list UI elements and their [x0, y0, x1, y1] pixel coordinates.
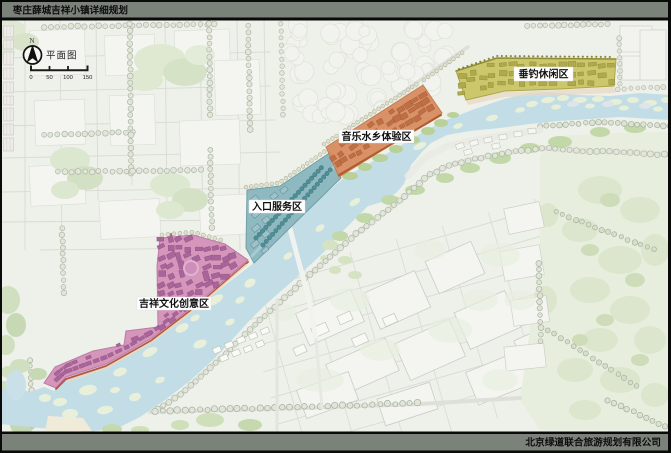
svg-text:50: 50: [46, 75, 52, 81]
svg-text:北京绿道联合旅游规划有限公司: 北京绿道联合旅游规划有限公司: [525, 436, 661, 449]
svg-text:吉祥文化创意区: 吉祥文化创意区: [139, 297, 209, 310]
svg-text:音乐水乡体验区: 音乐水乡体验区: [342, 130, 412, 143]
svg-text:入口服务区: 入口服务区: [252, 200, 302, 213]
svg-text:N: N: [29, 36, 35, 45]
svg-text:枣庄薛城吉祥小镇详细规划: 枣庄薛城吉祥小镇详细规划: [12, 5, 128, 17]
svg-text:0: 0: [29, 75, 32, 81]
svg-text:150: 150: [83, 75, 93, 81]
svg-text:100: 100: [63, 75, 73, 81]
svg-text:平面图: 平面图: [46, 51, 78, 62]
svg-text:垂钓休闲区: 垂钓休闲区: [519, 68, 569, 81]
